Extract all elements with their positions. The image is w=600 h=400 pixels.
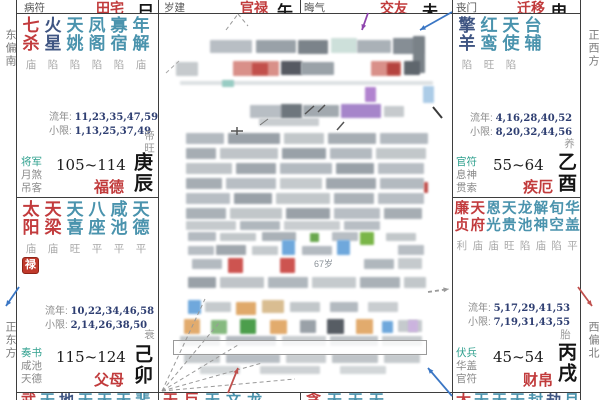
blur-block [380,133,428,144]
blur-block [188,300,201,314]
palace-name: 迁移 [517,0,545,13]
year-god-label: 晦气 [304,0,325,13]
blur-block [360,277,400,288]
blur-block [424,182,428,193]
blur-block [211,320,227,334]
blur-block [408,320,418,332]
star: 天梁庙 [42,201,64,258]
star: 擎羊陷 [456,17,478,74]
blur-block [334,208,380,219]
life-stage-label: 养 [561,138,575,151]
border-right [580,0,581,400]
palace-name: 交友 [380,0,408,13]
blur-block [356,319,373,334]
blur-block [404,277,426,288]
blur-block [330,302,358,312]
star: 红鸾旺 [478,17,500,74]
xiaoxian-years: 小限: 7,19,31,43,55 [468,313,570,328]
partial-star-chars: 太天天天封劫月 [456,393,580,400]
blur-block [260,366,320,374]
year-god-label: 丧门 [456,0,477,13]
blur-block [284,133,324,144]
stem-branch: 丙戌 [556,342,576,384]
partial-star-char: 天 [116,393,131,400]
blur-block [230,208,282,219]
age-range: 45~54 [493,348,544,366]
god-label: 贯索 [456,182,477,195]
palace-cell-bottom-3-partial[interactable]: 贪天天天 [301,393,452,400]
palace-cell-fude[interactable]: 七杀庙火星陷天姚陷凤阁陷寡宿陷年解庙 流年: 11,23,35,47,59 小限… [17,14,158,197]
palace-cell-jiaoyou-partial[interactable]: 晦气 交友 未 [301,0,452,13]
blur-block [205,302,231,312]
blur-block [331,38,357,53]
blur-block [262,232,296,241]
blur-block [332,354,378,363]
blur-block [380,178,424,189]
star: 解神庙 [533,201,549,255]
liunian-years: 流年: 4,16,28,40,52 [470,109,572,124]
blur-block [186,221,236,230]
blur-block [302,246,332,255]
xiaoxian-years: 小限: 2,14,26,38,50 [45,316,147,331]
branch-char: 午 [277,0,293,13]
blur-block [252,246,278,255]
blur-block [284,221,340,230]
direction-label-due-west: 正西方 [585,29,600,68]
partial-star-char: 贪 [306,393,321,400]
blur-block [236,163,276,174]
blur-block [360,232,374,245]
star: 天府庙 [470,201,486,255]
palace-name: 田宅 [96,0,124,13]
blur-block [268,277,308,288]
blur-block [326,178,376,189]
blur-block [176,62,198,76]
star: 太阳庙 [20,201,42,258]
blur-block [398,245,424,255]
direction-label-due-east: 正东方 [2,321,18,360]
god-label: 官符 [456,156,477,169]
cell-gods: 伏兵华盖官符 [456,347,477,386]
cell-gods: 将军月煞吊客 [21,156,42,195]
partial-star-char: 地 [59,393,74,400]
blur-block [393,38,423,54]
blur-block [423,86,434,103]
blur-block [282,240,295,255]
partial-star-char: 劫 [546,393,561,400]
palace-name: 财帛 [523,369,553,390]
blur-block [220,233,256,241]
star: 咸池平 [108,201,130,258]
star-list: 太阳庙天梁庙天喜旺八座平咸池平天德平 [20,201,152,258]
blur-block [382,336,422,346]
stem-branch: 庚辰 [132,152,152,194]
star: 华盖平 [565,201,581,255]
blur-block [330,148,372,159]
xiaoxian-years: 小限: 8,20,32,44,56 [470,123,572,138]
partial-star-char: 天 [205,393,220,400]
blur-block [413,36,425,73]
liunian-years: 流年: 10,22,34,46,58 [45,302,154,317]
blur-block [186,133,224,144]
partial-star-char: 武 [21,393,36,400]
star: 天喜旺 [64,201,86,258]
palace-name: 疾厄 [523,176,553,197]
blur-block [364,259,394,269]
star: 火星陷 [42,17,64,74]
blur-block [384,208,422,219]
blur-block [327,319,344,334]
blur-block [398,320,422,332]
blur-block [376,148,426,159]
blur-block [184,354,220,363]
partial-star-chars: 天巨天文龙 [163,393,300,400]
blur-block [188,232,216,241]
blur-block [228,133,280,144]
blur-block [384,354,420,363]
blur-block [252,63,268,75]
partial-star-char: 天 [348,393,363,400]
god-label: 天德 [21,373,42,386]
partial-star-char: 文 [226,393,241,400]
blur-block [280,258,295,273]
center-partial-text: 67岁 [314,257,333,270]
partial-star-chars: 贪天天天 [306,393,452,400]
palace-cell-guanlu-partial[interactable]: 岁建 官禄 午 [159,0,300,13]
blur-block [337,240,350,255]
blur-block [290,302,320,312]
god-label: 将军 [21,156,42,169]
liunian-years: 流年: 11,23,35,47,59 [49,108,158,123]
partial-star-char: 天 [40,393,55,400]
blur-block [378,163,424,174]
blur-block [180,81,433,85]
blur-block [340,366,386,374]
blur-block [384,106,404,117]
liunian-years: 流年: 5,17,29,41,53 [468,299,570,314]
blur-block [220,277,264,288]
blur-block [344,221,380,230]
blur-block [222,80,234,87]
blur-block [398,258,422,269]
blur-block [200,366,240,374]
blur-block [330,336,378,346]
blur-block [281,61,302,75]
blur-block [386,233,416,241]
palace-name: 官禄 [240,0,268,13]
branch-char: 巳 [138,0,154,13]
blur-block [286,354,326,363]
blur-block [280,178,322,189]
palace-cell-tianzhai-partial[interactable]: 病符 田宅 巳 [17,0,158,13]
col-line-left [158,0,159,400]
stem-branch: 乙酉 [556,152,576,194]
blur-block [280,163,332,174]
blur-block [368,302,398,312]
blur-block [312,277,356,288]
god-label: 伏兵 [456,347,477,360]
cell-gods: 官符息神贯索 [456,156,477,195]
blur-block [332,232,358,241]
blur-block [233,61,279,76]
direction-label-west-north: 西偏北 [585,321,600,360]
branch-char: 申 [551,0,567,13]
stem-branch: 己卯 [132,344,152,386]
god-label: 月煞 [21,169,42,182]
blur-block [186,208,226,219]
blur-block [371,61,401,76]
blur-block [236,302,256,315]
direction-label-east-south: 东偏南 [2,29,18,68]
blur-block [210,40,252,53]
star: 天使陷 [500,17,522,74]
partial-star-char: 天 [97,393,112,400]
palace-name: 福德 [94,176,124,197]
blur-block [186,193,230,204]
partial-star-char: 天 [369,393,384,400]
blur-block [186,178,222,189]
blur-block [226,336,276,346]
blur-block [286,208,330,219]
palace-name: 父母 [94,369,124,390]
partial-star-char: 太 [456,393,471,400]
star: 七杀庙 [20,17,42,74]
blur-block [234,193,272,204]
blur-block [365,87,376,102]
blur-block [188,277,216,288]
blur-block [186,163,232,174]
star: 廉贞利 [454,201,470,255]
life-stage-label: 胎 [557,329,571,342]
branch-char: 未 [422,0,438,13]
star: 恩光庙 [486,201,502,255]
partial-star-char: 封 [528,393,543,400]
star: 台辅 [522,17,544,74]
blur-block [282,336,326,346]
blur-block [250,105,282,118]
palace-cell-qianyi-partial[interactable]: 丧门 迁移 申 [453,0,580,13]
partial-star-char: 蜚 [135,393,150,400]
partial-star-char: 天 [78,393,93,400]
star: 年解庙 [130,17,152,74]
star: 八座平 [86,201,108,258]
blur-block [341,104,381,118]
palace-cell-bottom-1-partial[interactable]: 武天地天天天蜚 [17,393,158,400]
partial-star-char: 天 [474,393,489,400]
partial-star-char: 天 [510,393,525,400]
star: 天姚陷 [64,17,86,74]
blur-block [228,258,243,273]
age-range: 55~64 [493,156,544,174]
blur-block [300,320,316,333]
palace-cell-fumu[interactable]: 太阳庙天梁庙天喜旺八座平咸池平天德平 禄 流年: 10,22,34,46,58 … [17,198,158,392]
blur-block [328,133,376,144]
star-list: 廉贞利天府庙恩光庙天贵旺龙池陷解神庙旬空陷华盖平 [454,201,580,255]
hua-lu-badge: 禄 [22,257,39,274]
star: 天贵旺 [501,201,517,255]
ziwei-chart: 东偏南 正东方 正西方 西偏北 病符 田宅 巳 岁建 官禄 午 晦气 交友 未 … [0,0,600,400]
palace-cell-jie[interactable]: 擎羊陷红鸾旺天使陷台辅 流年: 4,16,28,40,52 小限: 8,20,3… [453,14,580,197]
year-god-label: 病符 [24,0,45,13]
god-label: 官符 [456,373,477,386]
partial-star-char: 天 [492,393,507,400]
star: 天德平 [130,201,152,258]
blur-block [382,321,393,333]
god-label: 奏书 [21,347,42,360]
cell-gods: 奏书咸池天德 [21,347,42,386]
partial-star-char: 龙 [247,393,262,400]
star: 寡宿陷 [108,17,130,74]
blur-block [240,221,280,230]
blur-block [184,319,200,334]
partial-star-chars: 武天地天天天蜚 [21,393,158,400]
star-list: 擎羊陷红鸾旺天使陷台辅 [456,17,544,74]
blur-block [334,193,374,204]
god-label: 吊客 [21,182,42,195]
god-label: 息神 [456,169,477,182]
blur-block [192,259,222,269]
palace-cell-bottom-4-partial[interactable]: 太天天天封劫月 [453,393,580,400]
blur-block [276,193,330,204]
blur-block [303,105,339,117]
blur-block [220,148,278,159]
blur-block [262,300,284,313]
star: 凤阁陷 [86,17,108,74]
blur-block [186,148,216,159]
xiaoxian-years: 小限: 1,13,25,37,49 [49,122,151,137]
blur-block [180,336,220,346]
star: 龙池陷 [517,201,533,255]
blur-block [216,245,246,255]
center-outline-box [173,340,427,355]
blur-block [357,40,391,53]
age-range: 105~114 [56,156,126,174]
blur-block [336,163,374,174]
blur-block [188,246,214,255]
blur-block [256,40,296,53]
blur-block [281,104,302,119]
blur-block [259,118,319,126]
blur-block [282,148,326,159]
blur-block [301,62,334,75]
god-label: 咸池 [21,360,42,373]
blur-block [270,320,287,334]
blur-block [226,354,280,363]
partial-star-char: 巨 [184,393,199,400]
blur-block [298,40,328,54]
life-stage-label: 衰 [141,329,155,342]
blur-block [240,319,256,334]
blur-block [404,61,420,75]
god-label: 华盖 [456,360,477,373]
star-list: 七杀庙火星陷天姚陷凤阁陷寡宿陷年解庙 [20,17,152,74]
blur-block [226,178,276,189]
blur-block [378,193,424,204]
year-god-label: 岁建 [164,0,185,13]
partial-star-char: 月 [564,393,579,400]
palace-cell-bottom-2-partial[interactable]: 天巨天文龙 [159,393,300,400]
blur-block [387,63,400,75]
blur-block [310,233,319,242]
age-range: 115~124 [56,348,126,366]
partial-star-char: 天 [163,393,178,400]
star: 旬空陷 [549,201,565,255]
partial-star-char: 天 [327,393,342,400]
palace-cell-caibo[interactable]: 廉贞利天府庙恩光庙天贵旺龙池陷解神庙旬空陷华盖平 流年: 5,17,29,41,… [453,198,580,392]
